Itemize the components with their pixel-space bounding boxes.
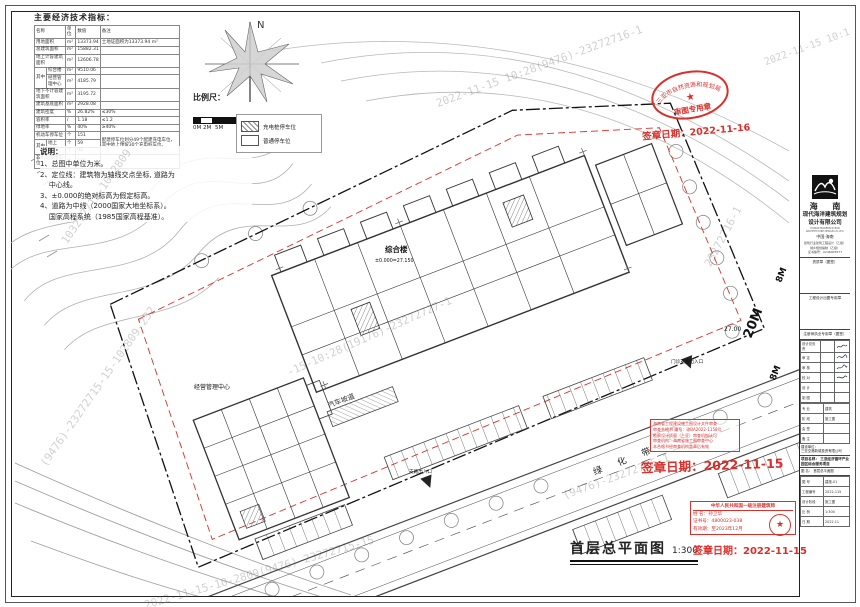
cert-line: 证书编号：A246005577: [800, 250, 850, 255]
signature-mark: [835, 340, 850, 352]
cell: /: [65, 117, 76, 125]
cell: 3195.72: [76, 88, 100, 101]
sign-name-cell: [820, 372, 834, 382]
signature-mark: [835, 382, 850, 392]
entrance-a-label: 支路出入口: [409, 468, 432, 475]
star-icon: ★: [685, 91, 696, 103]
cell: 12606.78: [76, 54, 100, 67]
spec-value: [824, 433, 850, 443]
approval-stamp-box: 海南省工程建设施工图设计文件审查 审查合格书 编号：琼BA2022-1158号 …: [650, 419, 740, 452]
sign-label: 设 计: [801, 382, 821, 392]
header-name: 名称: [35, 26, 66, 39]
cell: 13373.94: [76, 39, 100, 47]
cell: 9510.06: [76, 67, 100, 75]
cell: m²: [65, 39, 76, 47]
note-line: 国家高程系统（1985国家高程基准）。: [40, 212, 252, 223]
client-label: 建设单位：: [801, 445, 818, 449]
company-region: 海 南: [800, 201, 850, 212]
info-grid: 图 号 建施-01 工程编号 2022-115 设计阶段 施工图 比 例 1:3…: [800, 476, 850, 527]
cell: [100, 75, 179, 88]
name-label: 姓 名：: [693, 512, 708, 517]
signature-mark: [835, 362, 850, 372]
cell: 总建筑面积: [35, 46, 66, 54]
sign-row: 设 计: [801, 382, 850, 392]
cell: m²: [65, 67, 76, 75]
cell: 地下不计容建筑面积: [35, 88, 66, 101]
approval-line: 本合格书经审查机构盖章后有效: [653, 444, 737, 450]
axis-ticks: [274, 147, 633, 391]
scale-bar-title: 比例尺：: [193, 92, 311, 103]
info-value: 建施-01: [824, 477, 850, 487]
project-row: 项目名称： 三亚经济循环产业园区综合服务项目: [800, 456, 850, 468]
group-cell: 其中: [35, 67, 47, 88]
info-row: 日 期 2022.11: [801, 517, 850, 527]
client-name: 三亚空港新城投资有限公司: [801, 449, 842, 453]
stamp-section-2: 工程设计出图专用章: [800, 294, 850, 330]
table-row: 绿地率 % 40% ≥40%: [35, 124, 180, 132]
windrose-petals: [209, 22, 293, 102]
notes-title: 说明：: [40, 146, 252, 157]
table-row: 建筑基底面积 m² 2928.08: [35, 101, 180, 109]
sign-label: 校 对: [801, 372, 821, 382]
title-block: 海 南 现代海洋建筑规划 设计有限公司 HAINAN MODERN OCEAN …: [799, 11, 850, 597]
table-row: 机动车停车位 个 151 配建停车位划分49个配建充电车位，其中地上预留30个充…: [35, 132, 180, 140]
sign-label: 制 图: [801, 392, 821, 402]
signature-mark: [835, 352, 850, 362]
info-row: 比 例 1:300: [801, 507, 850, 517]
cell: ≤30%: [100, 109, 179, 117]
note-line: 3、±0.000的绝对标高为假定标高。: [40, 191, 252, 202]
info-row: 设计阶段 施工图: [801, 497, 850, 507]
section-label: 工程设计出图专用章: [800, 294, 850, 303]
building-left-label: 经营管理中心: [194, 383, 230, 391]
info-value: 2022-115: [824, 487, 850, 497]
header-note: 备注: [100, 26, 179, 39]
spec-label: 阶 段: [801, 413, 824, 423]
project-label: 项目名称：: [801, 457, 819, 461]
legend-label: 充电桩停车位: [263, 123, 296, 131]
cell: 容积率: [35, 117, 66, 125]
cell: 15882.31: [76, 46, 100, 54]
sign-row: 审 定: [801, 352, 850, 362]
cell: 用地面积: [35, 39, 66, 47]
info-label: 图 号: [801, 477, 824, 487]
cell: 建筑基底面积: [35, 101, 66, 109]
cell: [100, 67, 179, 75]
section-label: 资质章（图签）: [800, 258, 850, 267]
dim-8m-a: 8M: [775, 266, 790, 284]
section-label: 注册师执业专用章（图签）: [800, 330, 850, 339]
cell: [100, 46, 179, 54]
header-value: 数值: [76, 26, 100, 39]
sign-row: 制 图: [801, 392, 850, 402]
client-row: 建设单位： 三亚空港新城投资有限公司: [800, 444, 850, 457]
tick-label: 2M: [203, 125, 211, 131]
sign-name-cell: [820, 392, 834, 402]
info-label: 比 例: [801, 507, 824, 517]
building-main-elevation: ±0.000=27.150: [375, 258, 414, 264]
spec-value: 建筑: [824, 403, 850, 413]
architect-stamp-date: 签章日期：2022-11-15: [693, 542, 807, 557]
spec-grid: 专 业 建筑 阶 段 施工图 会 签 备 注: [800, 403, 850, 444]
architect-stamp-box: 中华人民共和国一级注册建筑师 姓 名：孙卫华 证书号：4800023-038 有…: [690, 501, 796, 535]
spec-label: 专 业: [801, 403, 824, 413]
table-row: 建筑密度 % 26.82% ≤30%: [35, 109, 180, 117]
cell: %: [65, 109, 76, 117]
spec-row: 会 签: [801, 423, 850, 433]
signature-mark: [835, 392, 850, 402]
dim-20m: 20M: [741, 306, 767, 340]
cell: %: [65, 124, 76, 132]
legend-item: 充电桩停车位: [241, 121, 317, 132]
spec-label: 会 签: [801, 423, 824, 433]
sign-name-cell: [820, 382, 834, 392]
valid-label: 有效期：: [693, 527, 711, 532]
company-name-line2: 设计有限公司: [800, 220, 850, 228]
info-value: 2022.11: [824, 517, 850, 527]
company-logo: [812, 175, 838, 199]
tick-label: 5M: [215, 125, 223, 131]
entrance-marker-a: [420, 474, 436, 490]
company-section: 海 南 现代海洋建筑规划 设计有限公司 HAINAN MODERN OCEAN …: [800, 175, 850, 258]
company-location: 中国·海南: [800, 234, 850, 240]
info-label: 日 期: [801, 517, 824, 527]
road-elevation-label: 27.00: [724, 326, 741, 333]
cell: 1.18: [76, 117, 100, 125]
spec-row: 阶 段 施工图: [801, 413, 850, 423]
spec-row: 备 注: [801, 433, 850, 443]
dim-8m-b: 8M: [769, 364, 784, 382]
signature-grid: 设计总负责 审 定 审 核 校 对 设 计: [800, 340, 850, 403]
architect-valid: 至2023年12月: [711, 527, 742, 532]
cell: 机动车停车位: [35, 132, 66, 140]
sign-row: 审 核: [801, 362, 850, 372]
info-row: 图 号 建施-01: [801, 477, 850, 487]
table-row: 其中 综合楼 m² 9510.06: [35, 67, 180, 75]
architect-seal-icon: ★: [769, 514, 791, 536]
cell: 地上计容建筑面积: [35, 54, 66, 67]
info-label: 设计阶段: [801, 497, 824, 507]
architect-stamp-title: 中华人民共和国一级注册建筑师: [693, 503, 793, 511]
table-row: 经营管理中心 m² 4185.79: [35, 75, 180, 88]
cell: 26.82%: [76, 109, 100, 117]
drawing-title: 首层总平面图 1:300: [570, 538, 698, 565]
entrance-b-label: 门诊支路出入口: [671, 358, 704, 365]
building-main: [265, 139, 629, 393]
table-header-row: 名称 单位 数值 备注: [35, 26, 180, 39]
cell: 40%: [76, 124, 100, 132]
stamp-section-3: 注册师执业专用章（图签）: [800, 330, 850, 340]
spec-value: 施工图: [824, 413, 850, 423]
spec-value: [824, 423, 850, 433]
cell: 4185.79: [76, 75, 100, 88]
building-main-label: 综合楼: [385, 244, 408, 254]
sign-name-cell: [820, 340, 834, 352]
note-line: 1、总图中单位为米。: [40, 159, 252, 170]
info-label: 工程编号: [801, 487, 824, 497]
sheet-name: 首层总平面图: [813, 469, 833, 473]
car-ramp: [327, 387, 398, 427]
cell: 建筑密度: [35, 109, 66, 117]
cell: m²: [65, 101, 76, 109]
standard-parking-swatch: [241, 135, 259, 146]
info-row: 工程编号 2022-115: [801, 487, 850, 497]
cell: 综合楼: [47, 67, 66, 75]
cell: 151: [76, 132, 100, 140]
title-block-blank: [800, 11, 850, 171]
sign-name-cell: [820, 362, 834, 372]
table-row: 地上计容建筑面积 m² 12606.78: [35, 54, 180, 67]
sign-row: 校 对: [801, 372, 850, 382]
charging-parking-swatch: [241, 121, 259, 132]
table-row: 容积率 / 1.18 ≤1.2: [35, 117, 180, 125]
signature-mark: [835, 372, 850, 382]
stamp-section-1: 资质章（图签）: [800, 258, 850, 294]
cell: 个: [65, 132, 76, 140]
notes-panel: 说明： 1、总图中单位为米。 2、定位线：建筑物为轴线交点坐标, 道路为 中心线…: [40, 146, 252, 222]
cell: 土地证面积为13373.94 m²: [100, 39, 179, 47]
cell: 绿地率: [35, 124, 66, 132]
cell: m²: [65, 88, 76, 101]
spec-label: 备 注: [801, 433, 824, 443]
company-name-line1: 现代海洋建筑规划: [800, 212, 850, 220]
company-name-en: HAINAN MODERN OCEAN ARCHITECTURE DESIGN …: [803, 227, 848, 232]
legend-label: 普通停车位: [263, 137, 291, 145]
sign-label: 审 定: [801, 352, 821, 362]
sign-name-cell: [820, 352, 834, 362]
economic-table-title: 主要经济技术指标：: [34, 12, 180, 23]
sign-label: 设计总负责: [801, 340, 821, 352]
cell: [100, 88, 179, 101]
note-line: 4、道路为中线（2000国家大地坐标系）。: [40, 201, 252, 212]
cell: m²: [65, 54, 76, 67]
cert-label: 证书号：: [693, 519, 711, 524]
architect-cert: 4800023-038: [711, 519, 742, 524]
cell: 经营管理中心: [47, 75, 66, 88]
note-line: 2、定位线：建筑物为轴线交点坐标, 道路为: [40, 170, 252, 181]
cell: [100, 54, 179, 67]
north-label: N: [257, 20, 264, 31]
spec-row: 专 业 建筑: [801, 403, 850, 413]
cell: m²: [65, 75, 76, 88]
cell: m²: [65, 46, 76, 54]
sheet-label: 图 名：: [801, 469, 812, 473]
table-row: 地下不计容建筑面积 m² 3195.72: [35, 88, 180, 101]
cell: ≤1.2: [100, 117, 179, 125]
drawing-title-text: 首层总平面图: [570, 538, 666, 558]
cell: ≥40%: [100, 124, 179, 132]
cell: 2928.08: [76, 101, 100, 109]
note-line: 中心线。: [40, 180, 252, 191]
legend-item: 普通停车位: [241, 135, 317, 146]
info-value: 1:300: [824, 507, 850, 517]
sign-row: 设计总负责: [801, 340, 850, 352]
parking-legend: 充电桩停车位 普通停车位: [236, 114, 322, 153]
architect-name: 孙卫华: [708, 512, 722, 517]
sign-label: 审 核: [801, 362, 821, 372]
info-value: 施工图: [824, 497, 850, 507]
table-row: 总建筑面积 m² 15882.31: [35, 46, 180, 54]
sheet-name-row: 图 名： 首层总平面图: [800, 468, 850, 476]
title-underline: [570, 564, 698, 565]
sheet: 汽车坡道 绿 化 带 综合楼 ±0.000=27.150 经营管理中心 27.0…: [0, 0, 860, 607]
table-row: 用地面积 m² 13373.94 土地证面积为13373.94 m²: [35, 39, 180, 47]
building-right-block: [596, 144, 683, 246]
tick-label: 0M: [193, 125, 201, 131]
cell: [100, 101, 179, 109]
header-unit: 单位: [65, 26, 76, 39]
cert-line: 建筑行业建筑工程设计（乙级）: [800, 241, 850, 246]
